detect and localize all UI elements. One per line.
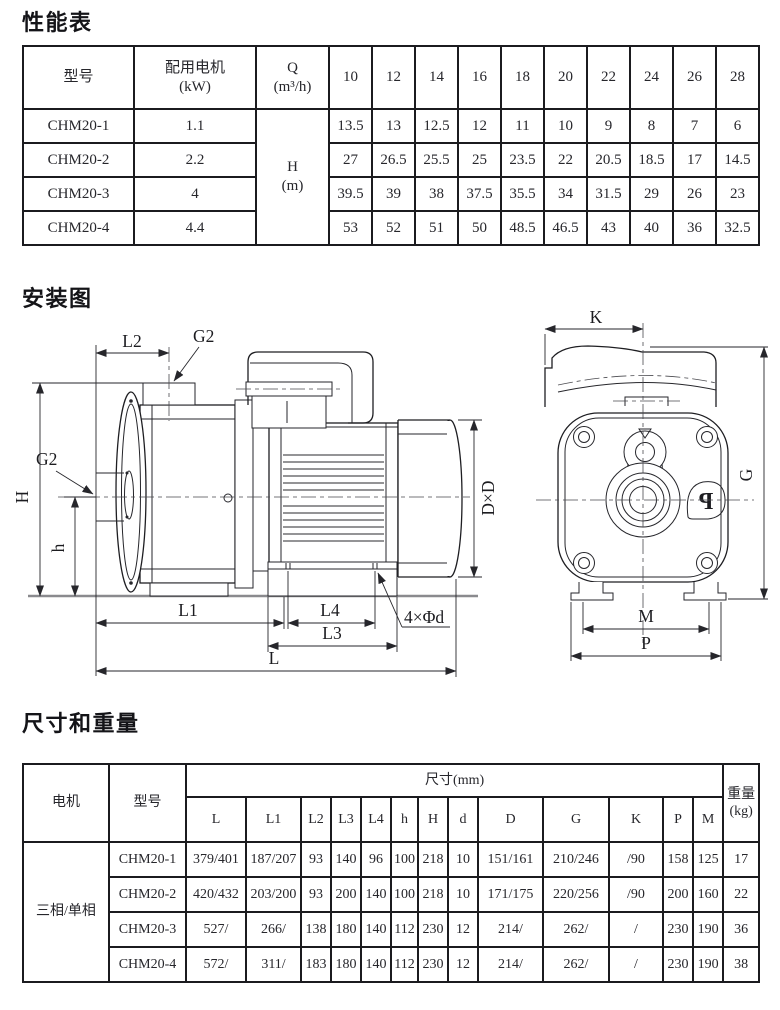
dim-value-cell: 140 [361, 877, 391, 912]
head-value-cell: 35.5 [501, 177, 544, 211]
model-cell: CHM20-4 [109, 947, 186, 982]
head-symbol: H [257, 158, 328, 177]
head-value-cell: 26.5 [372, 143, 415, 177]
dim-col-header: L2 [301, 797, 331, 842]
head-value-cell: 22 [544, 143, 587, 177]
dim-label-l4: L4 [320, 600, 340, 620]
dim-value-cell: 218 [418, 877, 448, 912]
col-header-motor-line1: 配用电机 [135, 59, 255, 78]
power-cell: 4 [134, 177, 256, 211]
dim-value-cell: 100 [391, 842, 418, 877]
dim-value-cell: 210/246 [543, 842, 609, 877]
dim-col-header: P [663, 797, 693, 842]
performance-table: 型号 配用电机 (kW) Q (m³/h) 10 12 14 16 18 20 … [22, 45, 760, 246]
dim-label-g: G [736, 468, 756, 481]
dim-value-cell: 180 [331, 947, 361, 982]
dim-label-g2-top: G2 [193, 326, 214, 346]
head-value-cell: 46.5 [544, 211, 587, 245]
head-value-cell: 14.5 [716, 143, 759, 177]
dim-value-cell: 12 [448, 912, 478, 947]
dim-value-cell: 262/ [543, 947, 609, 982]
dim-col-header: L3 [331, 797, 361, 842]
dim-col-header: d [448, 797, 478, 842]
head-value-cell: 36 [673, 211, 716, 245]
flow-header-cell: 20 [544, 46, 587, 109]
dim-col-header: h [391, 797, 418, 842]
dim-label-m: M [638, 606, 654, 626]
dim-value-cell: 138 [301, 912, 331, 947]
col-header-motor-line2: (kW) [135, 78, 255, 97]
dim-value-cell: 527/ [186, 912, 246, 947]
power-cell: 2.2 [134, 143, 256, 177]
flow-header-cell: 12 [372, 46, 415, 109]
dim-value-cell: 230 [418, 912, 448, 947]
head-value-cell: 39.5 [329, 177, 372, 211]
dim-value-cell: 96 [361, 842, 391, 877]
dim-value-cell: 10 [448, 877, 478, 912]
pump-side-view: L2 G2 G2 H h D×D L1 L4 L3 L 4×Φd [12, 326, 498, 677]
dim-col-header: K [609, 797, 663, 842]
dim-value-cell: 220/256 [543, 877, 609, 912]
head-value-cell: 12.5 [415, 109, 458, 143]
dim-value-cell: / [609, 912, 663, 947]
flow-header-cell: 10 [329, 46, 372, 109]
dim-value-cell: 171/175 [478, 877, 543, 912]
head-value-cell: 10 [544, 109, 587, 143]
dim-label-l2: L2 [122, 331, 141, 351]
col-header-motor-type: 电机 [23, 764, 109, 842]
flow-header-cell: 24 [630, 46, 673, 109]
dim-value-cell: 112 [391, 912, 418, 947]
model-cell: CHM20-2 [23, 143, 134, 177]
dimensions-section-title: 尺寸和重量 [22, 706, 140, 738]
dim-value-cell: 266/ [246, 912, 301, 947]
flow-header-cell: 14 [415, 46, 458, 109]
head-unit: (m) [257, 177, 328, 196]
head-value-cell: 40 [630, 211, 673, 245]
dim-value-cell: 12 [448, 947, 478, 982]
head-value-cell: 20.5 [587, 143, 630, 177]
weight-cell: 38 [723, 947, 759, 982]
dim-col-header: L1 [246, 797, 301, 842]
dim-col-header: L4 [361, 797, 391, 842]
head-value-cell: 27 [329, 143, 372, 177]
dim-label-l1: L1 [178, 600, 197, 620]
dim-value-cell: /90 [609, 877, 663, 912]
catalog-page: 性能表 型号 配用电机 (kW) Q (m³/h) 10 12 14 16 18… [0, 0, 780, 1010]
head-value-cell: 23 [716, 177, 759, 211]
head-value-cell: 34 [544, 177, 587, 211]
col-header-model: 型号 [109, 764, 186, 842]
flow-unit: (m³/h) [257, 78, 328, 97]
dim-value-cell: 187/207 [246, 842, 301, 877]
model-cell: CHM20-2 [109, 877, 186, 912]
dim-value-cell: 203/200 [246, 877, 301, 912]
col-header-model: 型号 [23, 46, 134, 109]
weight-cell: 17 [723, 842, 759, 877]
head-value-cell: 53 [329, 211, 372, 245]
dim-label-k: K [590, 307, 603, 327]
head-value-cell: 9 [587, 109, 630, 143]
head-value-cell: 8 [630, 109, 673, 143]
flow-header-cell: 22 [587, 46, 630, 109]
model-cell: CHM20-1 [23, 109, 134, 143]
table-row: CHM20-1 1.1 H (m) 13.5 13 12.5 12 11 10 … [23, 109, 759, 143]
weight-cell: 36 [723, 912, 759, 947]
dim-value-cell: 100 [391, 877, 418, 912]
head-value-cell: 25 [458, 143, 501, 177]
dim-label-l: L [269, 648, 280, 668]
head-value-cell: 11 [501, 109, 544, 143]
head-value-cell: 51 [415, 211, 458, 245]
dim-label-g2-left: G2 [36, 449, 57, 469]
head-value-cell: 23.5 [501, 143, 544, 177]
table-row: CHM20-3 527/ 266/ 138 180 140 112 230 12… [23, 912, 759, 947]
dim-col-header: H [418, 797, 448, 842]
dim-value-cell: 200 [331, 877, 361, 912]
dim-label-dxd: D×D [478, 480, 498, 515]
dim-value-cell: 160 [693, 877, 723, 912]
head-value-cell: 38 [415, 177, 458, 211]
dim-value-cell: 572/ [186, 947, 246, 982]
head-value-cell: 39 [372, 177, 415, 211]
flow-symbol: Q [257, 59, 328, 78]
dims-group-header: 尺寸(mm) [186, 764, 723, 797]
table-row: CHM20-3 4 39.5 39 38 37.5 35.5 34 31.5 2… [23, 177, 759, 211]
head-value-cell: 52 [372, 211, 415, 245]
col-header-motor: 配用电机 (kW) [134, 46, 256, 109]
head-value-cell: 29 [630, 177, 673, 211]
head-value-cell: 37.5 [458, 177, 501, 211]
dim-value-cell: 230 [663, 912, 693, 947]
flow-header-cell: 16 [458, 46, 501, 109]
dim-value-cell: 140 [361, 947, 391, 982]
table-row: 三相/单相 CHM20-1 379/401 187/207 93 140 96 … [23, 842, 759, 877]
dim-label-p: P [641, 633, 651, 653]
table-row: CHM20-2 420/432 203/200 93 200 140 100 2… [23, 877, 759, 912]
dim-value-cell: 420/432 [186, 877, 246, 912]
head-value-cell: 50 [458, 211, 501, 245]
dim-value-cell: 190 [693, 912, 723, 947]
dim-value-cell: 218 [418, 842, 448, 877]
flow-header-cell: 26 [673, 46, 716, 109]
dim-value-cell: 140 [361, 912, 391, 947]
model-cell: CHM20-4 [23, 211, 134, 245]
head-value-cell: 7 [673, 109, 716, 143]
head-value-cell: 43 [587, 211, 630, 245]
dim-value-cell: 379/401 [186, 842, 246, 877]
dim-col-header: M [693, 797, 723, 842]
flow-header-cell: 28 [716, 46, 759, 109]
col-header-weight-line1: 重量 [724, 786, 758, 804]
head-value-cell: 13.5 [329, 109, 372, 143]
head-value-cell: 18.5 [630, 143, 673, 177]
head-symbol-cell: H (m) [256, 109, 329, 245]
dim-value-cell: 190 [693, 947, 723, 982]
motor-type-cell: 三相/单相 [23, 842, 109, 982]
dim-value-cell: 214/ [478, 912, 543, 947]
head-value-cell: 6 [716, 109, 759, 143]
head-value-cell: 26 [673, 177, 716, 211]
dim-value-cell: 140 [331, 842, 361, 877]
dim-col-header: L [186, 797, 246, 842]
dim-value-cell: 311/ [246, 947, 301, 982]
dim-label-h-total: H [12, 490, 32, 503]
head-value-cell: 32.5 [716, 211, 759, 245]
dim-col-header: D [478, 797, 543, 842]
weight-cell: 22 [723, 877, 759, 912]
dim-value-cell: 125 [693, 842, 723, 877]
head-value-cell: 48.5 [501, 211, 544, 245]
dim-value-cell: 112 [391, 947, 418, 982]
model-cell: CHM20-3 [23, 177, 134, 211]
dim-value-cell: 93 [301, 842, 331, 877]
head-value-cell: 12 [458, 109, 501, 143]
dim-value-cell: 214/ [478, 947, 543, 982]
performance-section-title: 性能表 [22, 5, 93, 37]
dim-value-cell: 180 [331, 912, 361, 947]
dim-value-cell: 158 [663, 842, 693, 877]
head-value-cell: 13 [372, 109, 415, 143]
dim-col-header: G [543, 797, 609, 842]
pump-end-view: P K G M P [536, 307, 768, 661]
dim-value-cell: 230 [663, 947, 693, 982]
dim-value-cell: 151/161 [478, 842, 543, 877]
head-value-cell: 31.5 [587, 177, 630, 211]
table-row: CHM20-4 4.4 53 52 51 50 48.5 46.5 43 40 … [23, 211, 759, 245]
table-row: CHM20-2 2.2 27 26.5 25.5 25 23.5 22 20.5… [23, 143, 759, 177]
col-header-flow: Q (m³/h) [256, 46, 329, 109]
dim-value-cell: /90 [609, 842, 663, 877]
col-header-weight-line2: (kg) [724, 803, 758, 821]
head-value-cell: 25.5 [415, 143, 458, 177]
installation-diagram: L2 G2 G2 H h D×D L1 L4 L3 L 4×Φd [0, 305, 780, 705]
dim-value-cell: 93 [301, 877, 331, 912]
dim-value-cell: 262/ [543, 912, 609, 947]
model-cell: CHM20-3 [109, 912, 186, 947]
dimensions-weight-table: 电机 型号 尺寸(mm) 重量 (kg) L L1 L2 L3 L4 h H d… [22, 763, 760, 983]
head-value-cell: 17 [673, 143, 716, 177]
dim-value-cell: 200 [663, 877, 693, 912]
dim-value-cell: 230 [418, 947, 448, 982]
dim-label-l3: L3 [322, 623, 342, 643]
flow-header-cell: 18 [501, 46, 544, 109]
dim-value-cell: / [609, 947, 663, 982]
model-cell: CHM20-1 [109, 842, 186, 877]
dim-label-h-axis: h [48, 543, 68, 552]
dim-value-cell: 10 [448, 842, 478, 877]
brand-logo-letter: P [699, 489, 714, 515]
col-header-weight: 重量 (kg) [723, 764, 759, 842]
power-cell: 1.1 [134, 109, 256, 143]
dim-label-bolt-holes: 4×Φd [404, 607, 444, 627]
power-cell: 4.4 [134, 211, 256, 245]
dim-value-cell: 183 [301, 947, 331, 982]
table-row: CHM20-4 572/ 311/ 183 180 140 112 230 12… [23, 947, 759, 982]
